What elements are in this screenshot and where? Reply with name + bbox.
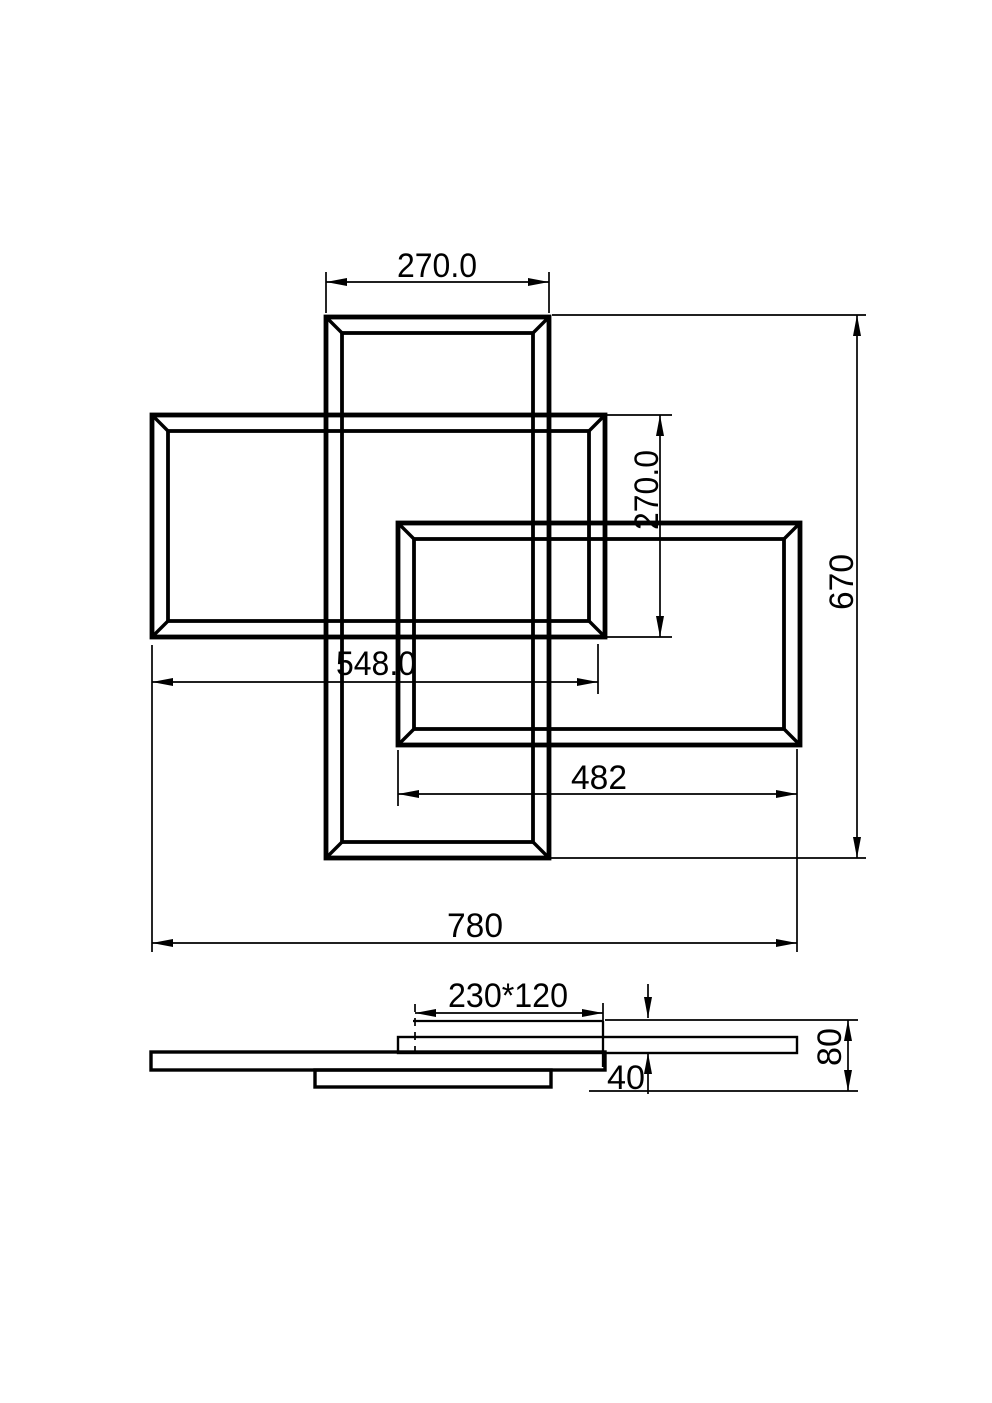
dim-side-height-arrow-1	[844, 1070, 852, 1091]
dim-side-canopy-arrow-1	[582, 1009, 603, 1017]
plan-frame-left-bevel-3	[589, 621, 605, 637]
dim-plan-top-width-label: 270.0	[397, 247, 477, 285]
plan-frame-right-bevel-3	[784, 729, 800, 745]
dim-plan-overall-width-arrow-0	[152, 939, 173, 947]
plan-frame-left-outer	[152, 415, 605, 637]
dim-plan-overall-width-label: 780	[447, 907, 503, 945]
drawing-page: 270.0270.0670548.0482780230*1204080	[0, 0, 992, 1403]
dim-plan-lower-width-label: 482	[571, 759, 627, 797]
plan-frame-right-outer	[398, 523, 800, 745]
dim-plan-top-width-arrow-1	[528, 278, 549, 286]
dim-side-canopy-arrow-0	[415, 1009, 436, 1017]
dim-side-offset-arrow-1	[644, 1053, 652, 1074]
side-bar-main	[151, 1052, 605, 1070]
plan-frame-tall-center-bevel-3	[533, 842, 549, 858]
dim-plan-overall-width-arrow-1	[776, 939, 797, 947]
plan-frame-tall-center-outer	[326, 317, 549, 858]
dim-plan-middle-width-arrow-0	[152, 678, 173, 686]
dim-side-canopy-label: 230*120	[448, 977, 568, 1015]
dim-side-height-label: 80	[811, 1028, 849, 1066]
plan-frame-tall-center-inner	[342, 333, 533, 842]
dim-plan-right-height-arrow-1	[853, 837, 861, 858]
side-bar-bottom	[315, 1070, 551, 1087]
technical-drawing: 270.0270.0670548.0482780230*1204080	[0, 0, 992, 1403]
dim-plan-middle-width-arrow-1	[577, 678, 598, 686]
dim-plan-middle-height-label: 270.0	[628, 450, 666, 530]
dim-side-offset-arrow-0	[644, 997, 652, 1018]
dim-plan-right-height-arrow-0	[853, 315, 861, 336]
plan-frame-left-inner	[168, 431, 589, 621]
dim-plan-middle-width-label: 548.0	[336, 645, 416, 683]
dim-plan-top-width-arrow-0	[326, 278, 347, 286]
dim-plan-lower-width-arrow-1	[776, 790, 797, 798]
dim-plan-middle-height-arrow-0	[656, 415, 664, 436]
dim-plan-right-height-label: 670	[823, 554, 861, 610]
plan-frame-right-bevel-1	[784, 523, 800, 539]
dim-plan-lower-width-arrow-0	[398, 790, 419, 798]
plan-frame-right-inner	[414, 539, 784, 729]
dim-plan-middle-height-arrow-1	[656, 616, 664, 637]
